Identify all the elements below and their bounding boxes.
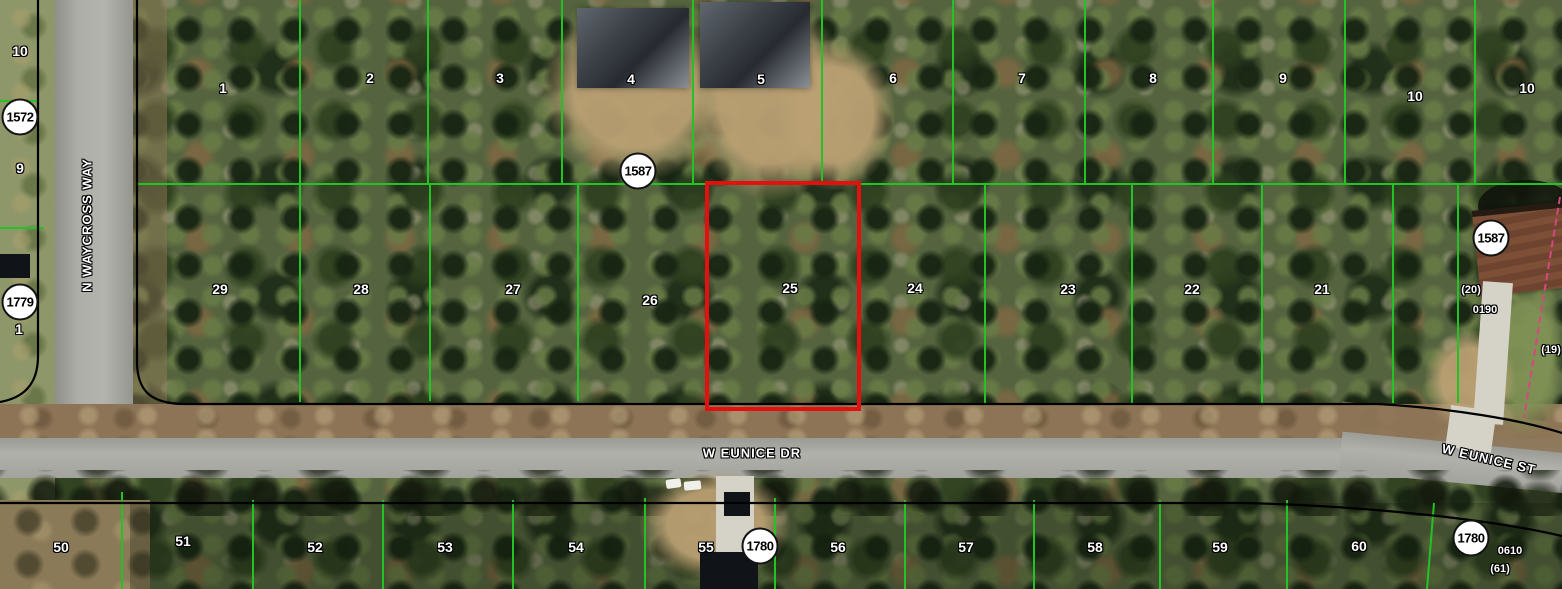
lot-number-59-32: 59 (1212, 539, 1228, 555)
parcel-annotation-61-4: (61) (1490, 563, 1510, 575)
lot-number-55-28: 55 (698, 539, 714, 555)
parcel-annotation-19-2: (19) (1541, 344, 1561, 356)
lot-number-29-14: 29 (212, 281, 228, 297)
parcel-annotation-20-0: (20) (1461, 284, 1481, 296)
lot-number-60-33: 60 (1351, 538, 1367, 554)
block-circle-1572-0: 1572 (2, 99, 39, 136)
lot-number-1-3: 1 (219, 80, 227, 96)
lot-number-21-22: 21 (1314, 281, 1330, 297)
street-label-nwaycrossway-0: N WAYCROSS WAY (80, 158, 95, 292)
lot-number-56-29: 56 (830, 539, 846, 555)
lot-number-10-13: 10 (1519, 80, 1535, 96)
lot-number-22-21: 22 (1184, 281, 1200, 297)
lot-number-4-6: 4 (627, 71, 635, 87)
lot-number-51-24: 51 (175, 533, 191, 549)
selected-parcel-highlight-lot-25[interactable] (705, 181, 861, 411)
parcel-annotation-0190-1: 0190 (1473, 304, 1497, 316)
parcel-annotation-0610-3: 0610 (1498, 545, 1522, 557)
block-circle-1587-2: 1587 (620, 153, 657, 190)
lot-number-27-16: 27 (505, 281, 521, 297)
street-label-weunicedr-1: W EUNICE DR (703, 446, 801, 461)
lot-number-10-12: 10 (1407, 88, 1423, 104)
lot-number-6-8: 6 (889, 70, 897, 86)
block-circle-1779-1: 1779 (2, 284, 39, 321)
lot-number-7-9: 7 (1018, 70, 1026, 86)
aerial-parcel-map: 1091123456789101029282726252423222150515… (0, 0, 1562, 589)
lot-number-25-18: 25 (782, 280, 798, 296)
lot-number-53-26: 53 (437, 539, 453, 555)
lot-number-58-31: 58 (1087, 539, 1103, 555)
lot-number-1-2: 1 (15, 321, 23, 337)
lot-number-26-17: 26 (642, 292, 658, 308)
lot-number-9-1: 9 (16, 160, 24, 176)
lot-number-10-0: 10 (12, 43, 28, 59)
lot-number-5-7: 5 (757, 71, 765, 87)
block-circle-1587-3: 1587 (1473, 220, 1510, 257)
block-circle-1780-5: 1780 (1453, 520, 1490, 557)
survey-line (1524, 197, 1560, 418)
lot-number-3-5: 3 (496, 70, 504, 86)
lot-number-52-25: 52 (307, 539, 323, 555)
lot-number-28-15: 28 (353, 281, 369, 297)
lot-number-50-23: 50 (53, 539, 69, 555)
lot-number-8-10: 8 (1149, 70, 1157, 86)
lot-number-9-11: 9 (1279, 70, 1287, 86)
lot-number-23-20: 23 (1060, 281, 1076, 297)
lot-number-57-30: 57 (958, 539, 974, 555)
lot-number-2-4: 2 (366, 70, 374, 86)
lot-number-54-27: 54 (568, 539, 584, 555)
lot-number-24-19: 24 (907, 280, 923, 296)
block-circle-1780-4: 1780 (742, 528, 779, 565)
